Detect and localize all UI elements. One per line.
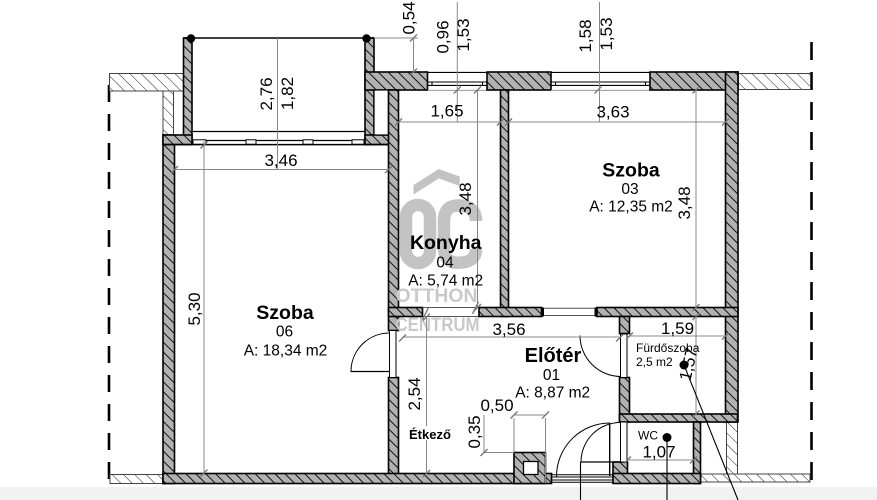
svg-text:06: 06 bbox=[276, 324, 293, 341]
svg-text:03: 03 bbox=[621, 181, 638, 198]
svg-text:Szoba: Szoba bbox=[256, 302, 314, 324]
svg-text:3,48: 3,48 bbox=[675, 186, 694, 219]
svg-text:Fürdőszoba: Fürdőszoba bbox=[636, 341, 700, 355]
svg-text:A: 12,35 m2: A: 12,35 m2 bbox=[589, 199, 673, 216]
svg-text:5,30: 5,30 bbox=[185, 292, 204, 325]
svg-text:A: 8,87 m2: A: 8,87 m2 bbox=[515, 385, 590, 402]
svg-text:04: 04 bbox=[436, 255, 454, 272]
svg-text:A: 5,74 m2: A: 5,74 m2 bbox=[408, 273, 483, 290]
svg-text:0,50: 0,50 bbox=[480, 396, 513, 415]
svg-text:1,58: 1,58 bbox=[576, 19, 595, 52]
svg-text:2,54: 2,54 bbox=[405, 377, 424, 410]
svg-text:WC: WC bbox=[638, 429, 658, 443]
svg-text:0,35: 0,35 bbox=[465, 415, 484, 448]
svg-text:0,96: 0,96 bbox=[434, 20, 453, 53]
svg-text:Étkező: Étkező bbox=[409, 427, 451, 442]
svg-text:A: 18,34 m2: A: 18,34 m2 bbox=[244, 343, 328, 360]
svg-text:1,65: 1,65 bbox=[430, 102, 463, 121]
svg-text:Szoba: Szoba bbox=[602, 160, 660, 182]
svg-text:2,5 m2: 2,5 m2 bbox=[636, 355, 673, 369]
svg-text:01: 01 bbox=[543, 367, 560, 384]
svg-text:0,54: 0,54 bbox=[400, 1, 419, 34]
svg-text:1,82: 1,82 bbox=[278, 77, 297, 110]
svg-text:Előtér: Előtér bbox=[525, 345, 582, 367]
svg-text:3,48: 3,48 bbox=[456, 182, 475, 215]
svg-text:1,53: 1,53 bbox=[597, 17, 616, 50]
svg-text:3,56: 3,56 bbox=[492, 320, 525, 339]
svg-text:CENTRUM: CENTRUM bbox=[396, 315, 480, 336]
svg-text:1,53: 1,53 bbox=[454, 18, 473, 51]
svg-text:1,59: 1,59 bbox=[661, 319, 694, 338]
svg-text:3,63: 3,63 bbox=[596, 103, 629, 122]
svg-text:1,07: 1,07 bbox=[642, 443, 675, 462]
svg-text:Konyha: Konyha bbox=[410, 232, 482, 254]
svg-text:2,76: 2,76 bbox=[257, 77, 276, 110]
svg-text:3,46: 3,46 bbox=[264, 151, 297, 170]
